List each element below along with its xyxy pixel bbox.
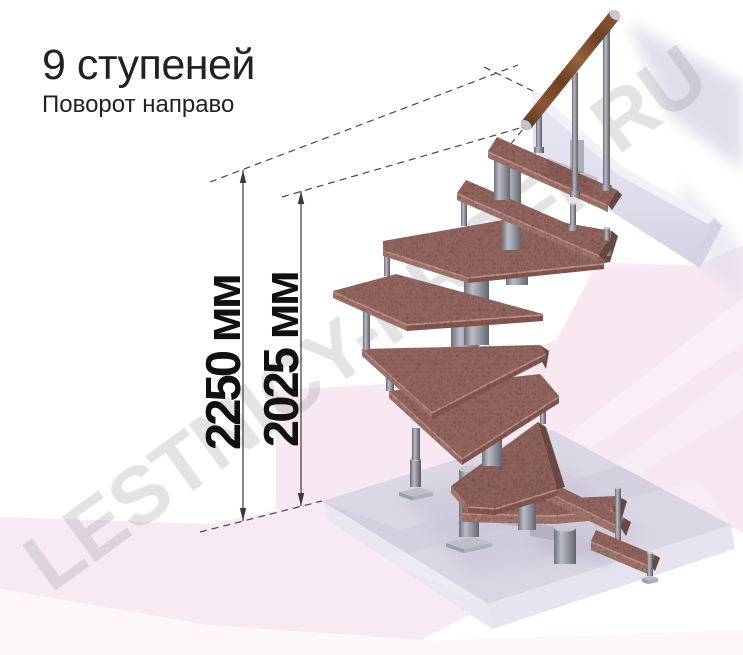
svg-text:2025 мм: 2025 мм <box>255 273 309 447</box>
svg-text:2250 мм: 2250 мм <box>197 276 251 450</box>
svg-text:9 ступеней: 9 ступеней <box>42 41 255 89</box>
svg-text:Поворот направо: Поворот направо <box>42 91 234 118</box>
